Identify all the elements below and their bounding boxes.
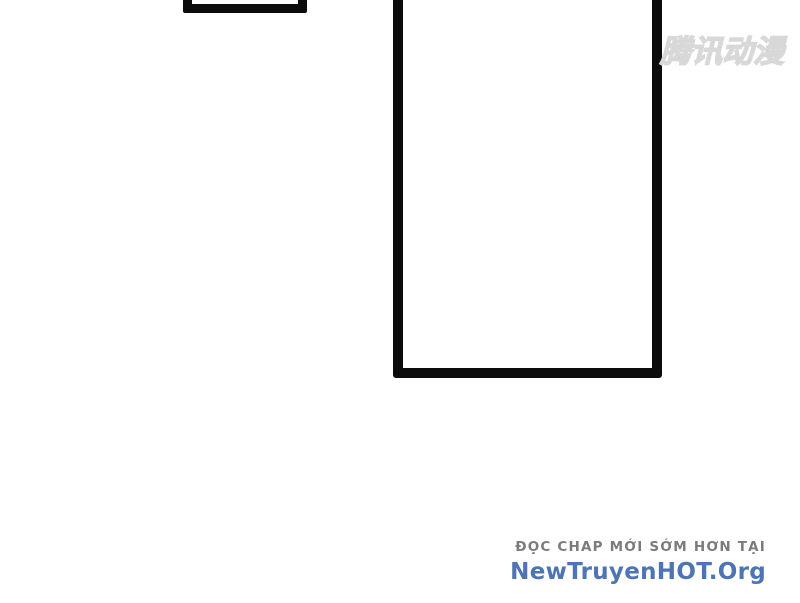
footer-tagline: ĐỌC CHAP MỚI SỚM HƠN TẠI: [510, 539, 766, 556]
footer-credit: ĐỌC CHAP MỚI SỚM HƠN TẠI NewTruyenHOT.Or…: [510, 539, 766, 585]
footer-site-name: NewTruyenHOT.Org: [510, 559, 766, 585]
comic-page: 腾讯动漫 ĐỌC CHAP MỚI SỚM HƠN TẠI NewTruyenH…: [0, 0, 800, 603]
publisher-watermark: 腾讯动漫: [660, 30, 800, 74]
comic-panel-small: [183, 0, 307, 13]
comic-panel-large: [393, 0, 662, 378]
